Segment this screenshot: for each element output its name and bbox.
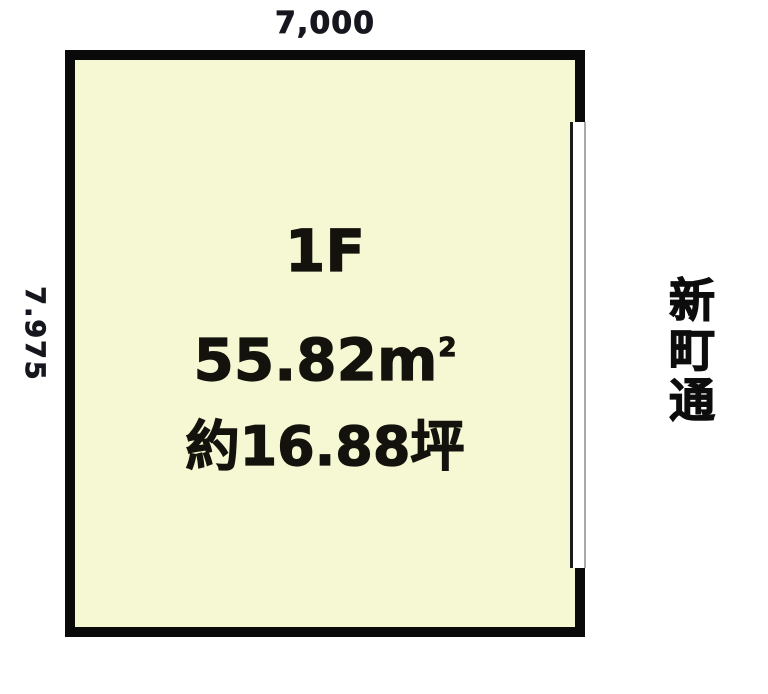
- dimension-left-height-label: 7.975: [19, 274, 49, 394]
- street-name-label: 新町通: [664, 276, 714, 426]
- floor-plan-canvas: 7,000 7.975 1F 55.82m2 約16.88坪 新町通: [0, 0, 768, 694]
- area-unit-exponent: 2: [438, 333, 456, 363]
- area-unit-base: m: [377, 326, 437, 394]
- floor-label: 1F: [65, 222, 585, 280]
- area-tsubo-label: 約16.88坪: [65, 420, 585, 474]
- dimension-top-width-label: 7,000: [65, 6, 585, 41]
- floor-area-label: 55.82m2: [65, 319, 585, 389]
- area-number: 55.82: [194, 326, 377, 394]
